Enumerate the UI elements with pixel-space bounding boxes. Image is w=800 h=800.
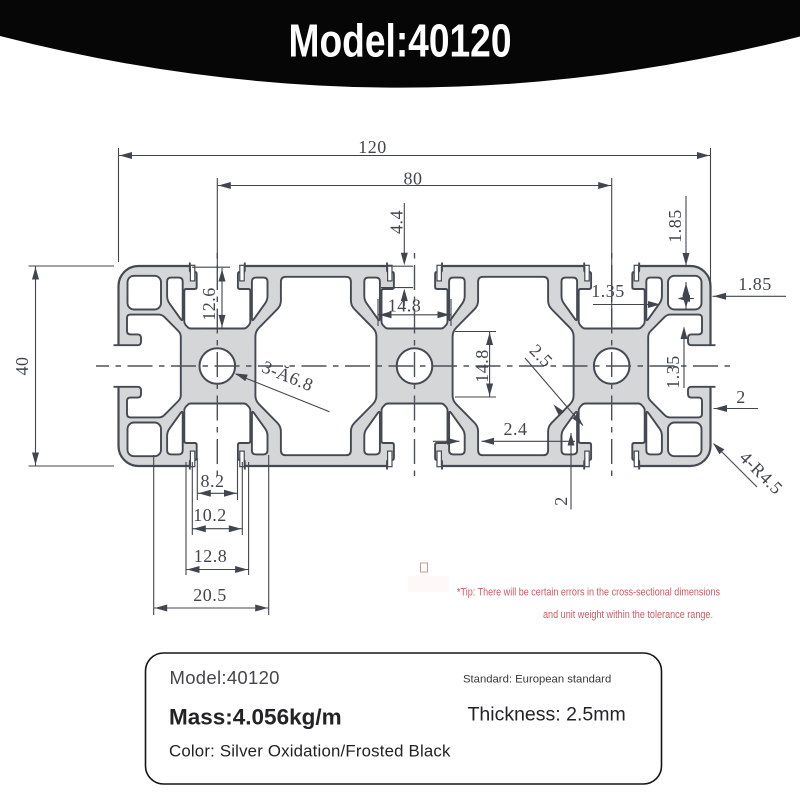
svg-text:Model:40120: Model:40120: [289, 15, 512, 67]
svg-text:8.2: 8.2: [201, 471, 225, 491]
svg-text:1.85: 1.85: [738, 274, 772, 294]
svg-text:4.4: 4.4: [387, 210, 407, 234]
svg-text:120: 120: [358, 137, 387, 157]
svg-text:2: 2: [736, 387, 746, 407]
svg-text:40: 40: [12, 357, 32, 376]
svg-text:12.8: 12.8: [194, 546, 228, 566]
svg-text:12.6: 12.6: [199, 287, 219, 321]
svg-text:14.8: 14.8: [388, 296, 422, 316]
svg-text:Model:40120: Model:40120: [170, 667, 280, 688]
svg-text:2.4: 2.4: [504, 419, 528, 439]
svg-text:Thickness: 2.5mm: Thickness: 2.5mm: [468, 704, 626, 726]
svg-text:Standard: European standard: Standard: European standard: [463, 674, 611, 686]
svg-text:1.35: 1.35: [591, 281, 625, 301]
svg-text:1.35: 1.35: [663, 355, 683, 389]
svg-text:20.5: 20.5: [193, 585, 227, 605]
svg-text:10.2: 10.2: [193, 505, 227, 525]
svg-text:and unit weight within the tol: and unit weight within the tolerance ran…: [543, 609, 713, 621]
svg-text:1.85: 1.85: [665, 209, 685, 243]
svg-text:*Tip: There will be certain er: *Tip: There will be certain errors in th…: [457, 587, 720, 599]
svg-text:Mass:4.056kg/m: Mass:4.056kg/m: [169, 705, 342, 730]
svg-text:2: 2: [551, 496, 571, 506]
svg-text:80: 80: [404, 169, 423, 189]
svg-text:14.8: 14.8: [472, 349, 492, 383]
svg-text:Color: Silver Oxidation/Froste: Color: Silver Oxidation/Frosted Black: [169, 742, 451, 761]
